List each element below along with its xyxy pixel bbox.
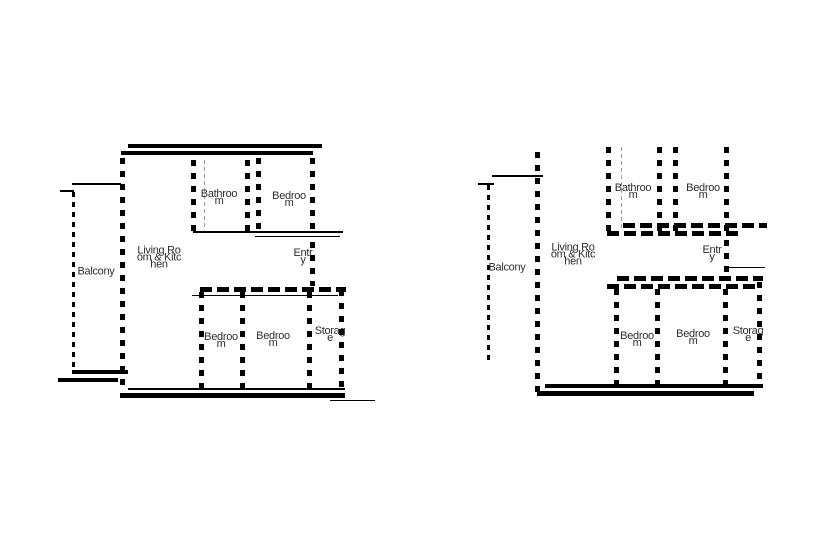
wall-segment <box>192 295 338 296</box>
wall-segment <box>537 391 754 396</box>
wall-segment <box>727 267 765 268</box>
wall-segment <box>535 152 540 392</box>
balcony-wall <box>72 183 121 185</box>
room-label-entry: Entry <box>701 247 723 261</box>
room-label-living-room-kitchen: Living Room & Kitchen <box>136 248 182 269</box>
wall-segment <box>623 223 767 228</box>
wall-segment <box>724 240 729 276</box>
wall-segment <box>723 289 728 385</box>
room-label-bedroom-1: Bedroom <box>201 334 241 348</box>
room-label-bedroom-2: Bedroom <box>253 333 293 347</box>
room-label-bedroom-2: Bedroom <box>673 331 713 345</box>
wall-segment <box>245 160 250 232</box>
room-label-bathroom: Bathroom <box>199 191 239 205</box>
wall-segment <box>128 144 322 148</box>
wall-segment <box>120 158 125 392</box>
room-label-living-room-kitchen: Living Room & Kitchen <box>550 245 596 266</box>
wall-segment <box>200 287 346 292</box>
wall-segment <box>607 284 758 289</box>
wall-segment <box>724 147 729 233</box>
balcony-wall <box>72 192 75 370</box>
wall-segment <box>120 393 345 398</box>
wall-segment <box>255 236 340 237</box>
balcony-wall <box>487 185 490 362</box>
room-label-bedroom-top: Bedroom <box>683 185 723 199</box>
balcony-wall <box>478 183 494 185</box>
wall-segment <box>191 160 196 232</box>
room-label-storage: Storage <box>313 328 347 342</box>
wall-segment <box>330 400 375 401</box>
balcony-wall <box>72 370 128 374</box>
floor-plan-canvas: Balcony Living Room & Kitchen Bathroom B… <box>0 0 831 555</box>
room-label-entry: Entry <box>292 250 314 264</box>
wall-segment <box>121 151 313 155</box>
wall-segment <box>193 231 343 233</box>
wall-segment <box>657 147 662 233</box>
balcony-wall <box>58 378 118 382</box>
room-label-bedroom-top: Bedroom <box>269 193 309 207</box>
wall-segment <box>256 158 261 232</box>
wall-segment <box>310 158 315 232</box>
wall-segment <box>606 147 611 233</box>
wall-segment <box>128 388 345 390</box>
room-label-balcony: Balcony <box>76 269 116 276</box>
room-label-bedroom-1: Bedroom <box>617 333 657 347</box>
wall-segment <box>545 384 763 388</box>
wall-segment <box>617 276 763 281</box>
room-label-bathroom: Bathroom <box>613 185 653 199</box>
wall-segment <box>673 147 678 233</box>
room-label-storage: Storage <box>731 328 765 342</box>
room-label-balcony: Balcony <box>487 265 527 272</box>
wall-segment <box>607 231 738 236</box>
wall-segment <box>307 292 312 391</box>
